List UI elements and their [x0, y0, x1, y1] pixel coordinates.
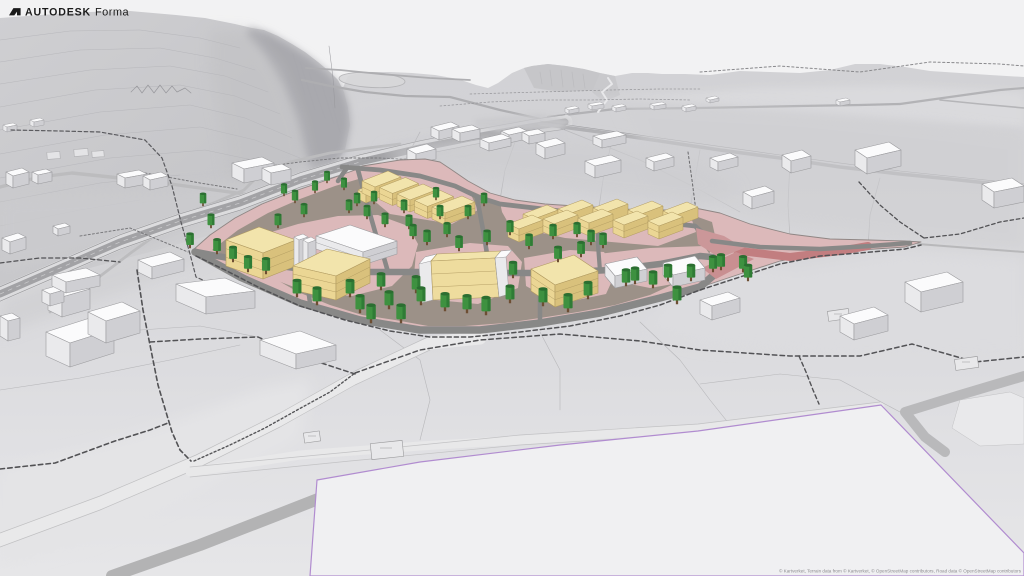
- svg-text:AUTODESK: AUTODESK: [25, 7, 91, 19]
- svg-text:Forma: Forma: [95, 7, 129, 19]
- svg-text:© Kartverket, Terrain data fro: © Kartverket, Terrain data from © Kartve…: [779, 568, 1022, 574]
